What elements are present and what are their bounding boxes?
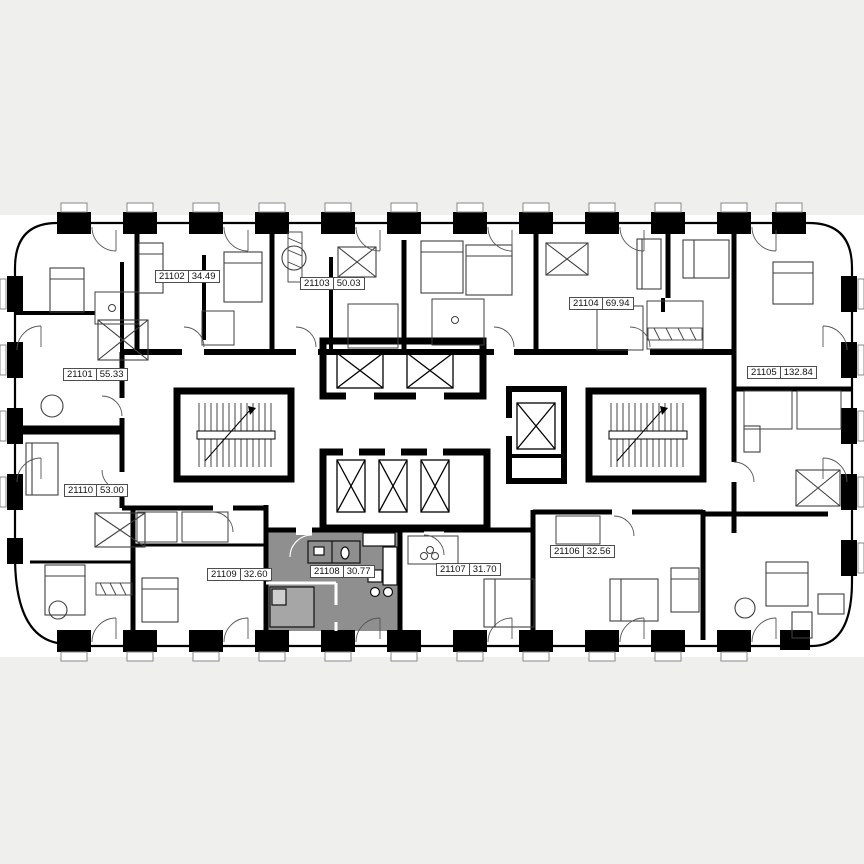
unit-id: 21106 bbox=[550, 545, 584, 558]
unit-id: 21110 bbox=[64, 484, 97, 497]
unit-label-21105[interactable]: 21105132.84 bbox=[747, 366, 817, 379]
unit-label-21107[interactable]: 2110731.70 bbox=[436, 563, 501, 576]
unit-label-21108[interactable]: 2110830.77 bbox=[310, 565, 375, 578]
unit-id: 21108 bbox=[310, 565, 344, 578]
unit-id: 21103 bbox=[300, 277, 334, 290]
unit-label-21104[interactable]: 2110469.94 bbox=[569, 297, 634, 310]
unit-label-21109[interactable]: 2110932.60 bbox=[207, 568, 272, 581]
unit-area: 30.77 bbox=[344, 565, 375, 578]
unit-area: 32.60 bbox=[241, 568, 272, 581]
unit-label-21110[interactable]: 2111053.00 bbox=[64, 484, 128, 497]
unit-area: 55.33 bbox=[97, 368, 128, 381]
floor-plan-page: 2110155.33 2110234.49 2110350.03 2110469… bbox=[0, 0, 864, 864]
unit-label-21101[interactable]: 2110155.33 bbox=[63, 368, 128, 381]
unit-area: 31.70 bbox=[470, 563, 501, 576]
unit-label-21103[interactable]: 2110350.03 bbox=[300, 277, 365, 290]
unit-id: 21102 bbox=[155, 270, 189, 283]
unit-label-21102[interactable]: 2110234.49 bbox=[155, 270, 220, 283]
unit-area: 132.84 bbox=[781, 366, 817, 379]
unit-id: 21107 bbox=[436, 563, 470, 576]
unit-area: 32.56 bbox=[584, 545, 615, 558]
unit-area: 50.03 bbox=[334, 277, 365, 290]
unit-id: 21101 bbox=[63, 368, 97, 381]
unit-id: 21105 bbox=[747, 366, 781, 379]
unit-id: 21109 bbox=[207, 568, 241, 581]
unit-area: 34.49 bbox=[189, 270, 220, 283]
floor-plan-drawing bbox=[0, 0, 864, 864]
unit-id: 21104 bbox=[569, 297, 603, 310]
unit-label-21106[interactable]: 2110632.56 bbox=[550, 545, 615, 558]
unit-area: 69.94 bbox=[603, 297, 634, 310]
unit-area: 53.00 bbox=[97, 484, 128, 497]
